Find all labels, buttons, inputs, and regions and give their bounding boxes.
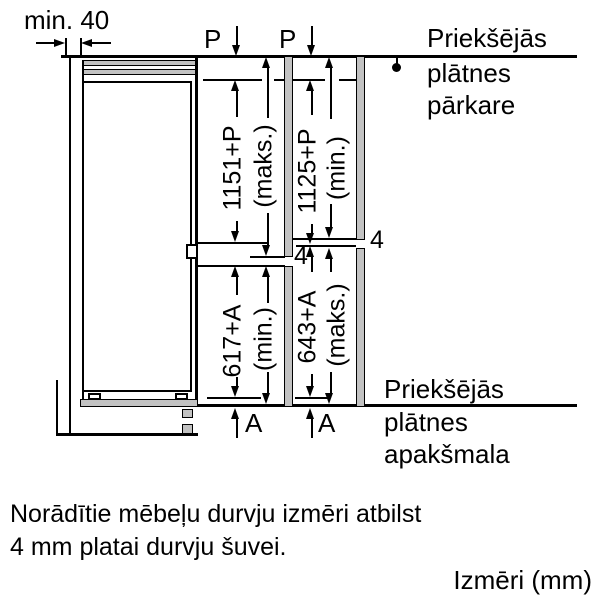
units-label: Izmēri (mm) xyxy=(453,566,592,595)
callout-top-leader-dot xyxy=(392,63,401,72)
p-label-2: P xyxy=(279,25,296,54)
a-arrow-shaft-2 xyxy=(311,417,313,438)
installation-diagram: min. 40 P P xyxy=(0,0,600,600)
note-line1: Norādītie mēbeļu durvju izmēri atbilst xyxy=(10,501,421,529)
dim-lr-inner-down-icon xyxy=(306,386,314,397)
dim-ur-outer-shaft-top xyxy=(330,66,332,119)
p-arrow-shaft-1 xyxy=(236,26,238,46)
appliance-left-edge xyxy=(82,61,84,407)
front-panel-right-upper xyxy=(356,56,365,240)
appliance-door-lower xyxy=(195,259,198,401)
compartment-bottom-line xyxy=(82,390,192,392)
callout-bottom-line1: Priekšējās xyxy=(384,375,504,404)
dim-ul-inner-down-icon xyxy=(231,231,239,242)
dim-ul-outer-down-icon xyxy=(262,245,270,256)
dim-lower-left-value: 617+A xyxy=(219,305,248,378)
dim-ul-outer-shaft-top xyxy=(267,66,269,118)
panel-gap-upper-line-left xyxy=(250,256,285,258)
compartment-top-line xyxy=(82,81,192,83)
dim-lower-right-qualifier: (maks.) xyxy=(323,283,352,366)
appliance-bottom-ref-line-b xyxy=(295,397,328,399)
appliance-top-ref-line-c xyxy=(339,79,356,81)
callout-top-line1: Priekšējās xyxy=(427,24,547,53)
p-label-1: P xyxy=(204,25,221,54)
dim-upper-left-value: 1151+P xyxy=(219,125,248,210)
dim-lr-outer-down-icon xyxy=(325,393,333,404)
a-label-2: A xyxy=(318,409,335,438)
panel-gap-lower-line-left xyxy=(197,265,285,267)
dim-ll-outer-down-icon xyxy=(262,393,270,404)
a-label-1: A xyxy=(245,409,262,438)
appliance-top-rail-1 xyxy=(82,60,198,66)
cabinet-base-left-line xyxy=(56,380,58,436)
p-arrow-down-icon-2 xyxy=(307,45,315,56)
dim-ll-outer-shaft-top xyxy=(267,275,269,303)
panel-gap-upper-line-right xyxy=(293,238,356,240)
min-gap-arrow-left-icon xyxy=(81,39,92,47)
appliance-plinth-bar xyxy=(80,399,198,407)
appliance-top-ref-line-b xyxy=(274,79,325,81)
dim-lower-right-value: 643+A xyxy=(294,291,323,364)
dim-lr-outer-shaft-top xyxy=(330,257,332,272)
dim-ul-outer-shaft-bot xyxy=(267,213,269,248)
dim-lr-inner-shaft-top xyxy=(311,255,313,272)
appliance-base-block-2 xyxy=(182,424,193,434)
compartment-right-upper xyxy=(190,81,192,245)
front-panel-left-lower xyxy=(284,266,293,407)
a-arrow-shaft-1 xyxy=(236,417,238,438)
note-line2: 4 mm platai durvju šuvei. xyxy=(10,534,287,562)
gap-label-right: 4 xyxy=(370,227,384,255)
min-gap-arrow-right-icon xyxy=(54,39,65,47)
gap-label-left: 4 xyxy=(294,243,308,271)
p-arrow-down-icon-1 xyxy=(232,45,240,56)
min-gap-tick-left xyxy=(65,38,67,57)
compartment-right-lower xyxy=(190,259,192,392)
min-gap-arrow-shaft-right xyxy=(91,42,111,44)
appliance-door-upper xyxy=(195,56,198,245)
appliance-base-block-1 xyxy=(182,409,193,418)
appliance-door-split-line xyxy=(197,242,267,244)
cabinet-side-wall xyxy=(69,56,71,436)
callout-top-line3: pārkare xyxy=(427,91,515,120)
dim-upper-left-qualifier: (maks.) xyxy=(250,124,279,207)
appliance-bottom-ref-line-a xyxy=(207,397,261,399)
dim-ll-inner-shaft-top xyxy=(236,275,238,295)
callout-top-line2: plātnes xyxy=(427,59,511,88)
dim-ul-inner-shaft-top xyxy=(236,89,238,117)
callout-bottom-line2: plātnes xyxy=(384,408,468,437)
dim-upper-right-value: 1125+P xyxy=(294,128,323,213)
dim-lr-outer-shaft-bot xyxy=(330,372,332,395)
min-gap-arrow-shaft-left xyxy=(36,42,56,44)
min-gap-label: min. 40 xyxy=(24,6,109,35)
dim-upper-right-qualifier: (min.) xyxy=(323,136,352,200)
dim-ur-inner-shaft-top xyxy=(311,89,313,115)
front-panel-right-lower xyxy=(356,248,365,407)
dim-ur-outer-down-icon xyxy=(325,227,333,238)
callout-bottom-line3: apakšmala xyxy=(384,440,510,469)
door-hinge-notch xyxy=(186,244,198,259)
p-arrow-shaft-2 xyxy=(311,26,313,46)
dim-ll-inner-down-icon xyxy=(231,386,239,397)
appliance-top-rail-2 xyxy=(82,69,198,75)
dim-ur-outer-shaft-bot xyxy=(330,204,332,228)
cabinet-bottom-line xyxy=(56,433,198,436)
dim-ll-outer-shaft-bot xyxy=(267,372,269,395)
dim-lower-left-qualifier: (min.) xyxy=(250,307,279,371)
front-panel-left-upper xyxy=(284,56,293,257)
